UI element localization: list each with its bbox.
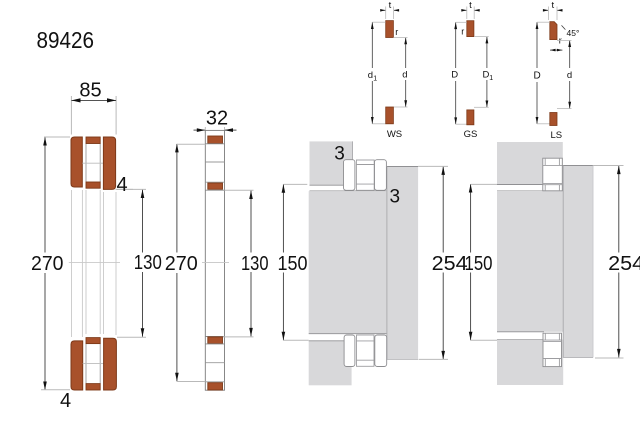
svg-text:254: 254 [432, 253, 468, 275]
svg-text:270: 270 [31, 253, 64, 275]
svg-text:130: 130 [134, 252, 162, 274]
svg-text:254: 254 [608, 253, 640, 275]
svg-text:d: d [567, 70, 572, 81]
svg-text:t: t [389, 0, 392, 11]
svg-text:D: D [451, 70, 458, 81]
svg-text:t: t [551, 0, 554, 11]
svg-text:WS: WS [387, 129, 402, 140]
svg-text:r: r [461, 27, 464, 37]
svg-text:3: 3 [390, 186, 401, 207]
svg-text:3: 3 [334, 144, 345, 165]
svg-text:32: 32 [206, 108, 228, 130]
svg-text:t: t [469, 0, 472, 11]
svg-text:d: d [368, 70, 373, 81]
svg-text:45°: 45° [567, 28, 580, 38]
svg-text:130: 130 [241, 253, 269, 275]
svg-text:150: 150 [465, 253, 493, 275]
svg-text:270: 270 [165, 253, 198, 275]
svg-text:GS: GS [464, 129, 478, 140]
svg-text:LS: LS [550, 130, 562, 141]
svg-text:89426: 89426 [37, 27, 95, 53]
svg-text:d: d [402, 70, 407, 81]
svg-text:85: 85 [79, 80, 101, 102]
svg-text:150: 150 [278, 253, 308, 275]
svg-text:4: 4 [117, 174, 128, 196]
svg-text:4: 4 [60, 390, 71, 412]
svg-text:D: D [534, 71, 541, 82]
svg-text:r: r [395, 27, 398, 37]
svg-text:1: 1 [373, 76, 377, 83]
svg-text:1: 1 [489, 75, 493, 82]
